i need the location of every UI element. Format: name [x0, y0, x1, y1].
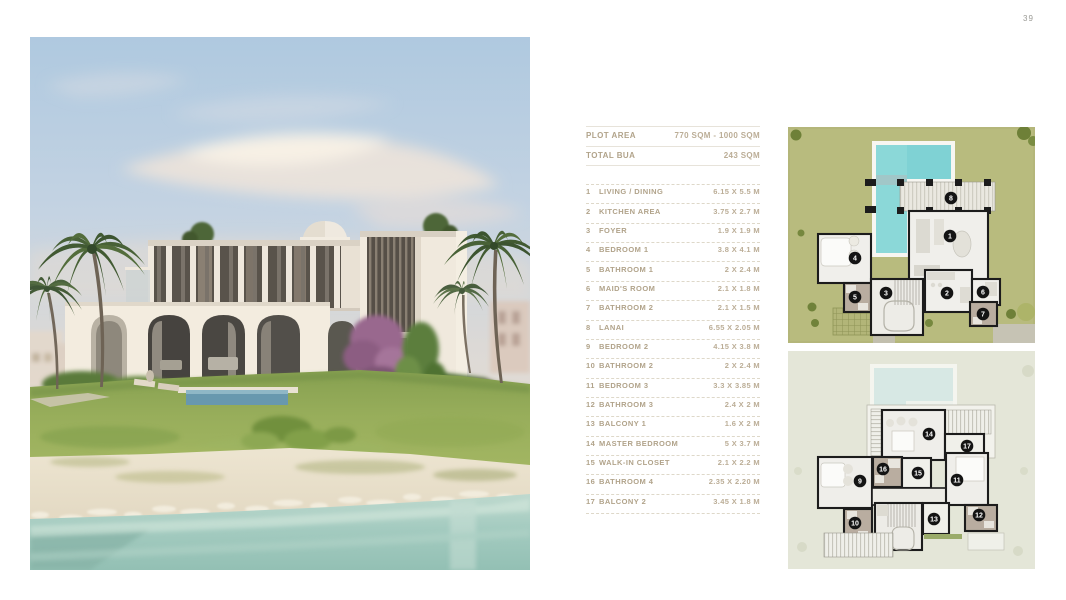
- svg-text:3: 3: [884, 290, 888, 297]
- svg-text:10: 10: [851, 520, 859, 527]
- svg-text:9: 9: [858, 478, 862, 485]
- svg-text:8: 8: [949, 195, 953, 202]
- svg-text:14: 14: [925, 431, 933, 438]
- svg-text:7: 7: [981, 311, 985, 318]
- svg-text:2: 2: [945, 290, 949, 297]
- svg-text:16: 16: [879, 466, 887, 473]
- svg-text:5: 5: [853, 294, 857, 301]
- svg-text:4: 4: [853, 255, 857, 262]
- svg-text:13: 13: [930, 516, 938, 523]
- svg-text:12: 12: [975, 512, 983, 519]
- svg-text:1: 1: [948, 233, 952, 240]
- svg-text:6: 6: [981, 289, 985, 296]
- svg-text:15: 15: [914, 470, 922, 477]
- svg-text:11: 11: [953, 477, 961, 484]
- svg-text:17: 17: [963, 443, 971, 450]
